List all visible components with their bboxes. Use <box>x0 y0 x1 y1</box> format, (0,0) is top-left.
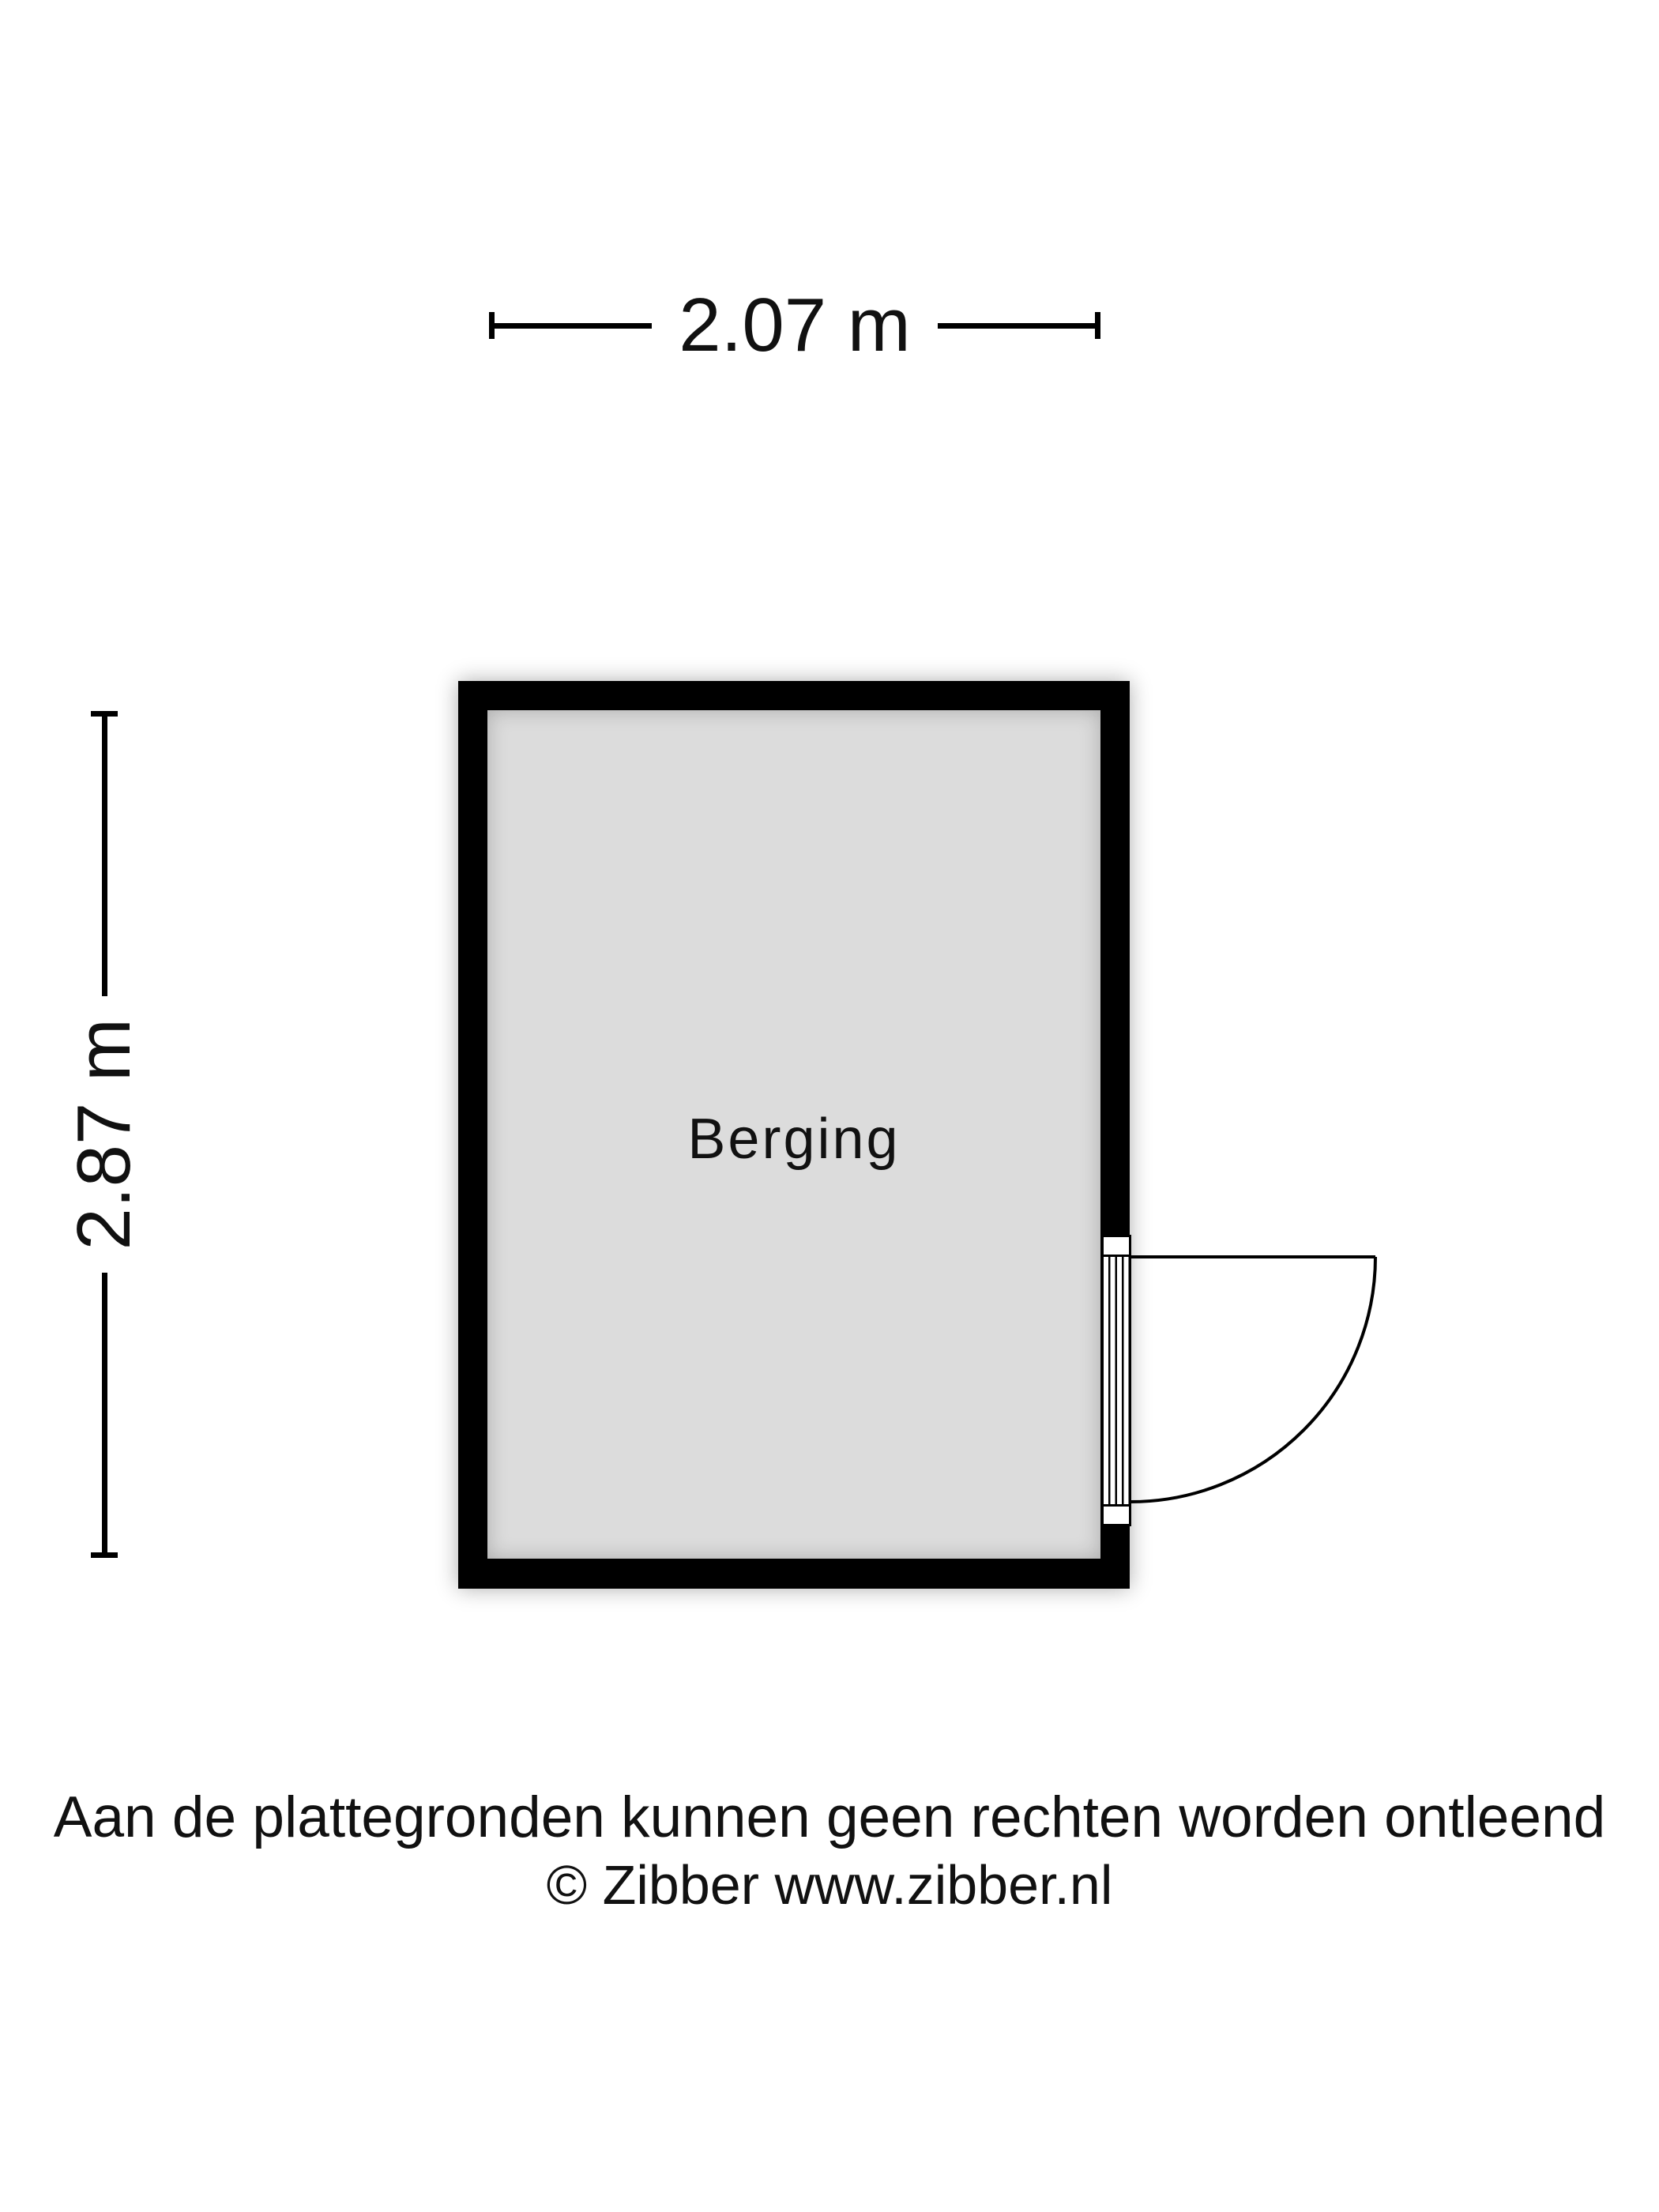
dimension-line-segment <box>102 1273 107 1552</box>
dimension-line-segment <box>495 323 652 329</box>
dimension-line-segment <box>102 717 107 996</box>
dimension-tick-bottom <box>91 1552 118 1558</box>
dimension-width-label: 2.07 m <box>652 288 937 363</box>
footer-disclaimer: Aan de plattegronden kunnen geen rechten… <box>0 1787 1659 1848</box>
footer: Aan de plattegronden kunnen geen rechten… <box>0 1787 1659 1915</box>
room-berging-walls: Berging <box>458 681 1130 1589</box>
dimension-tick-top <box>91 711 118 717</box>
door-jamb-bottom <box>1101 1504 1131 1526</box>
dimension-width: 2.07 m <box>489 282 1100 369</box>
dimension-height-label: 2.87 m <box>66 1018 142 1250</box>
floorplan-page: 2.07 m 2.87 m Berging Aan de plattegrond… <box>0 0 1659 2212</box>
door <box>1101 1235 1131 1526</box>
door-jamb-top <box>1101 1235 1131 1257</box>
footer-copyright: © Zibber www.zibber.nl <box>0 1856 1659 1914</box>
dimension-line-segment <box>938 323 1095 329</box>
door-leaf <box>1101 1257 1131 1504</box>
room-label: Berging <box>687 1111 900 1168</box>
dimension-tick-left <box>489 312 495 339</box>
dimension-height: 2.87 m <box>78 711 130 1558</box>
door-swing-arc <box>1129 1253 1383 1509</box>
room-berging-floor: Berging <box>487 710 1100 1559</box>
dimension-tick-right <box>1095 312 1100 339</box>
